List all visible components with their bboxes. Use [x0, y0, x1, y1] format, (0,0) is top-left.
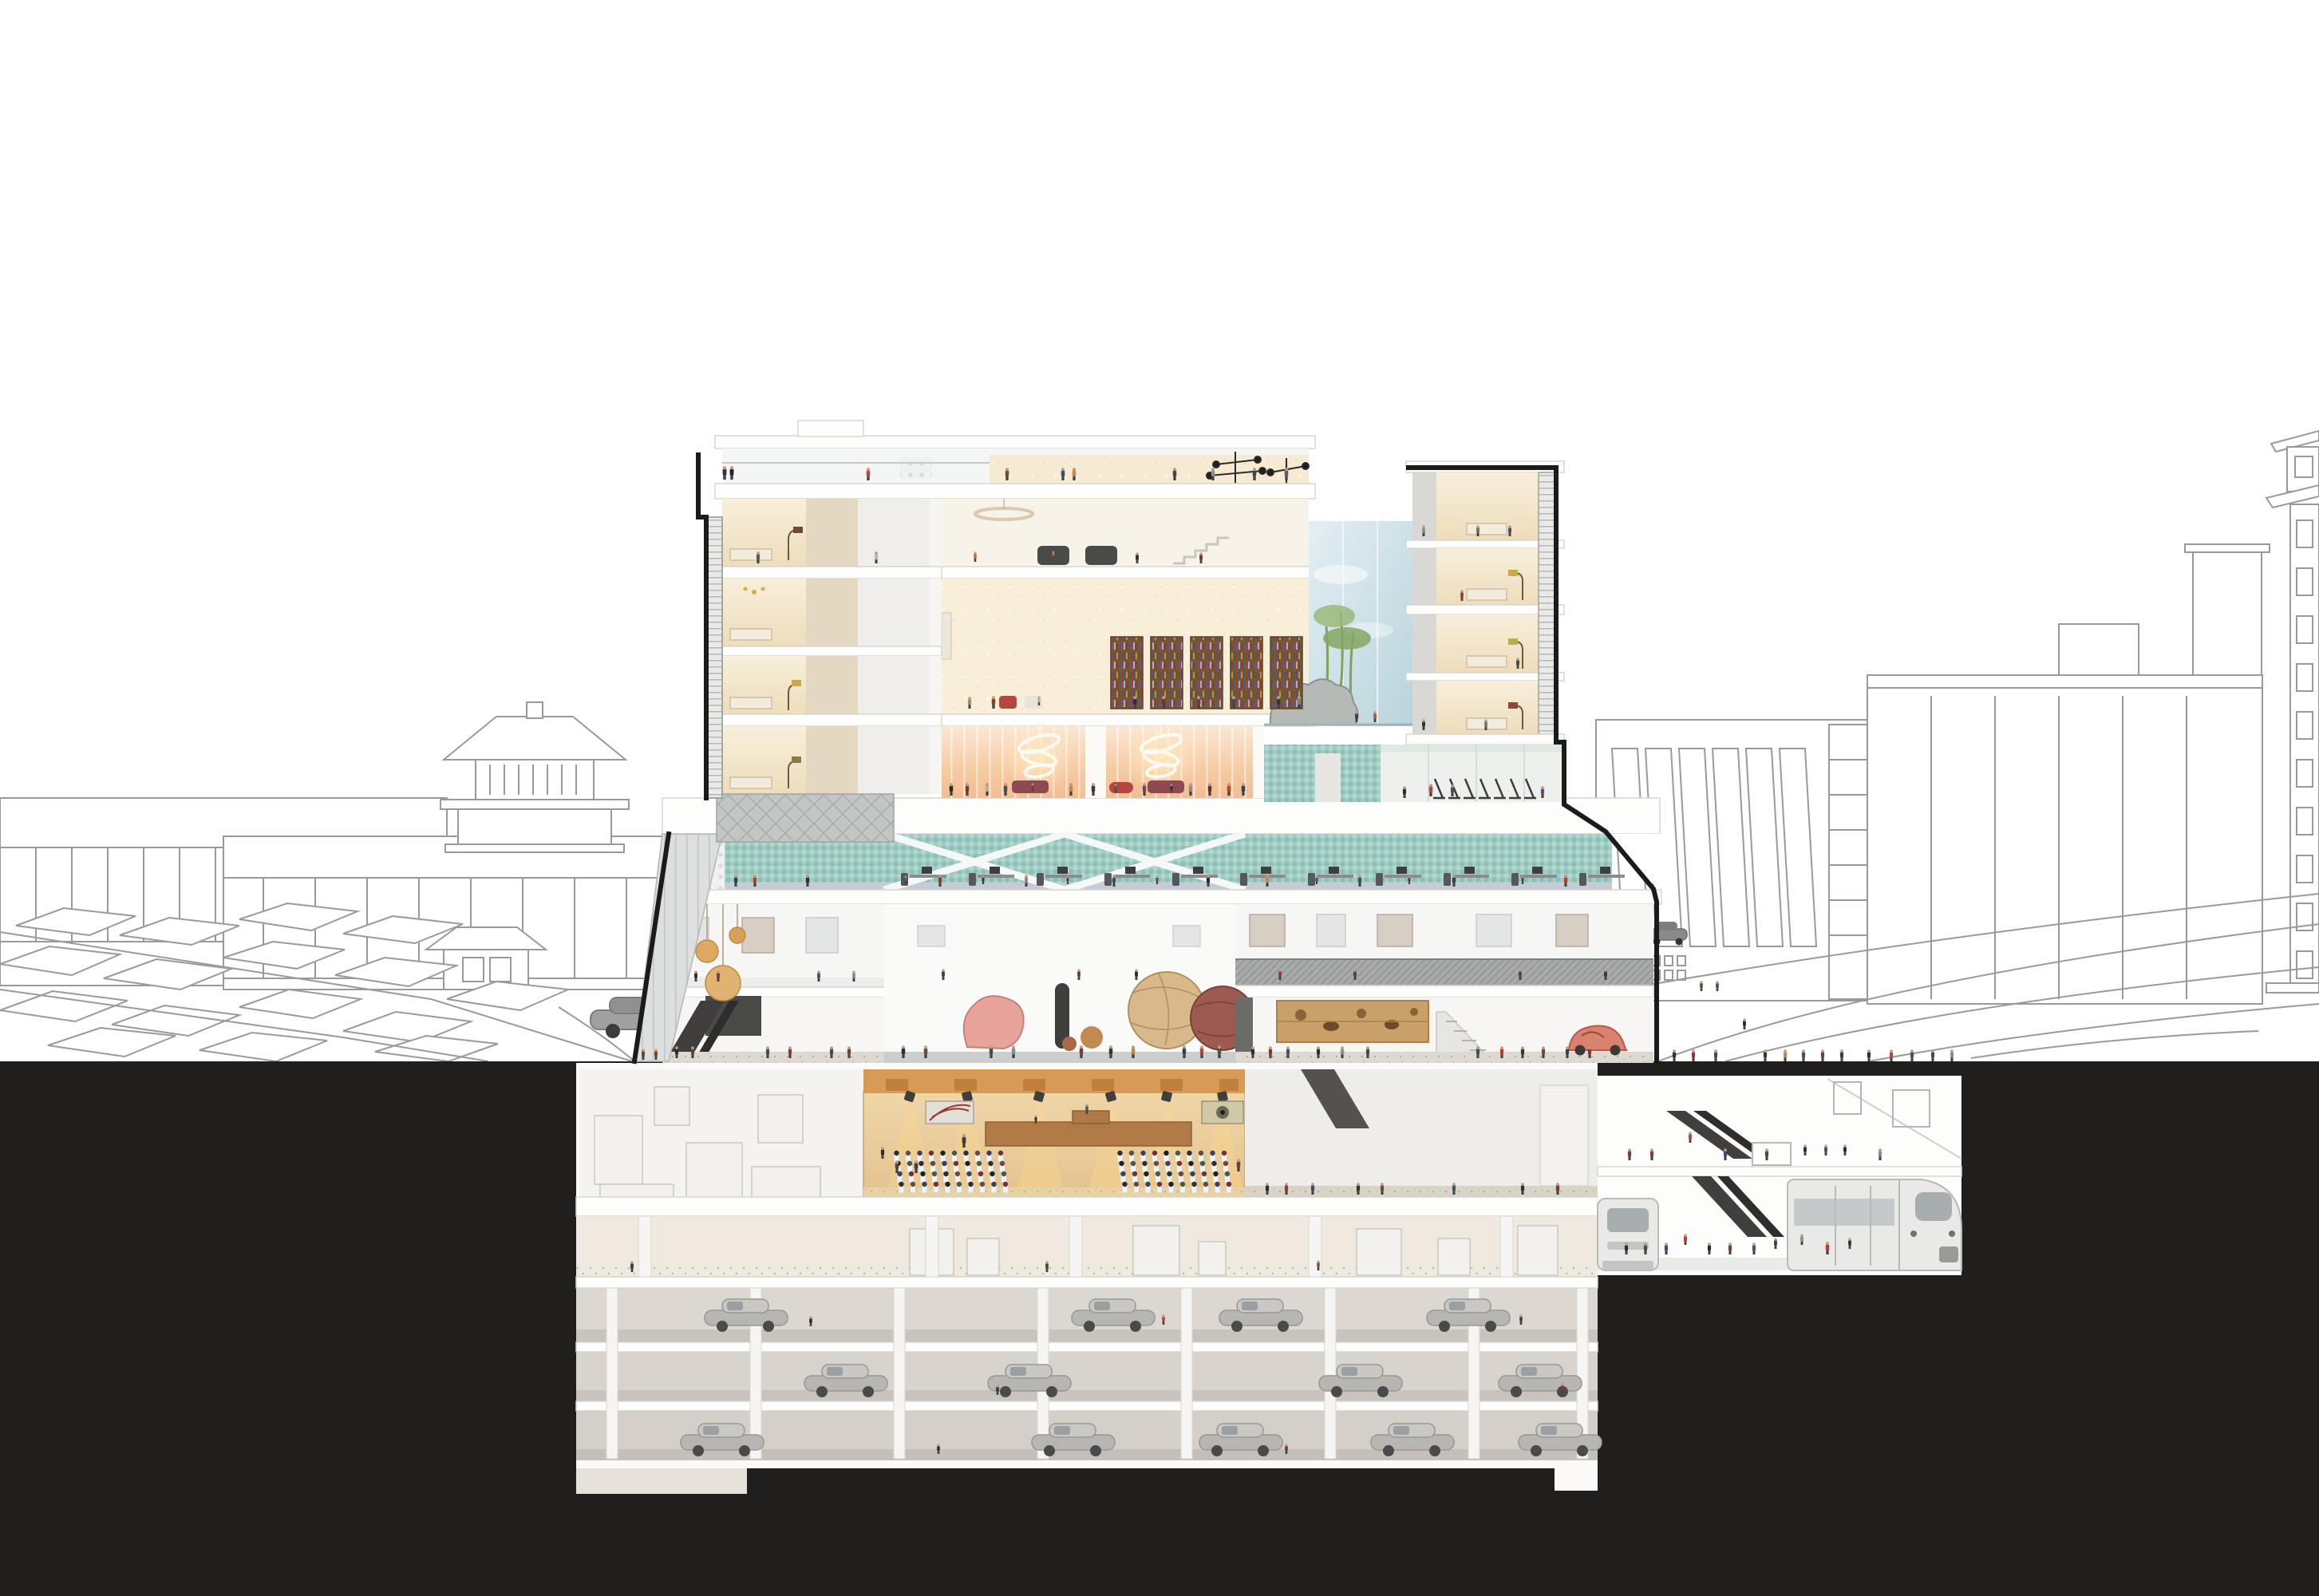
- hotel-floor: [722, 499, 942, 567]
- hotel-floor: [1412, 681, 1539, 734]
- storage-level: [576, 1216, 1598, 1277]
- ballroom-sofa: [1012, 780, 1049, 793]
- parking-b3: [576, 1352, 1598, 1401]
- screen-panel: [900, 458, 932, 479]
- reading-chair: [999, 696, 1017, 709]
- building-section: [634, 421, 1661, 1063]
- library-shelves: [1111, 637, 1302, 709]
- hotel-floor: [722, 656, 942, 714]
- section-rendering: [0, 0, 2319, 1596]
- gallery-hall: [884, 904, 1254, 1063]
- ballroom-beanbag: [1109, 782, 1133, 793]
- tower-left-wing: [706, 499, 942, 842]
- gate-pavilion-outline: [426, 927, 546, 990]
- metro-train-right: [1788, 1179, 1961, 1270]
- hotel-floor: [1412, 472, 1539, 540]
- hotel-floor: [722, 726, 942, 794]
- diamond-clad-wall: [717, 794, 894, 842]
- hotel-floor: [1412, 614, 1539, 673]
- hotel-floor: [1412, 548, 1539, 605]
- section-canvas: [0, 0, 2319, 1596]
- lounge-chair: [1085, 546, 1117, 565]
- b1-corridor: [1245, 1069, 1598, 1199]
- roof-penthouse: [798, 421, 863, 437]
- ballroom-sofa: [1148, 780, 1184, 793]
- sculpture-sphere-small: [1080, 1026, 1103, 1049]
- hotel-floor: [722, 579, 942, 646]
- metro-station: [1598, 1076, 1961, 1275]
- sculpture-sphere-small: [1062, 1037, 1077, 1051]
- stage-bench: [986, 1122, 1191, 1146]
- ballroom: [942, 720, 1264, 798]
- metro-train-left: [1598, 1199, 1658, 1270]
